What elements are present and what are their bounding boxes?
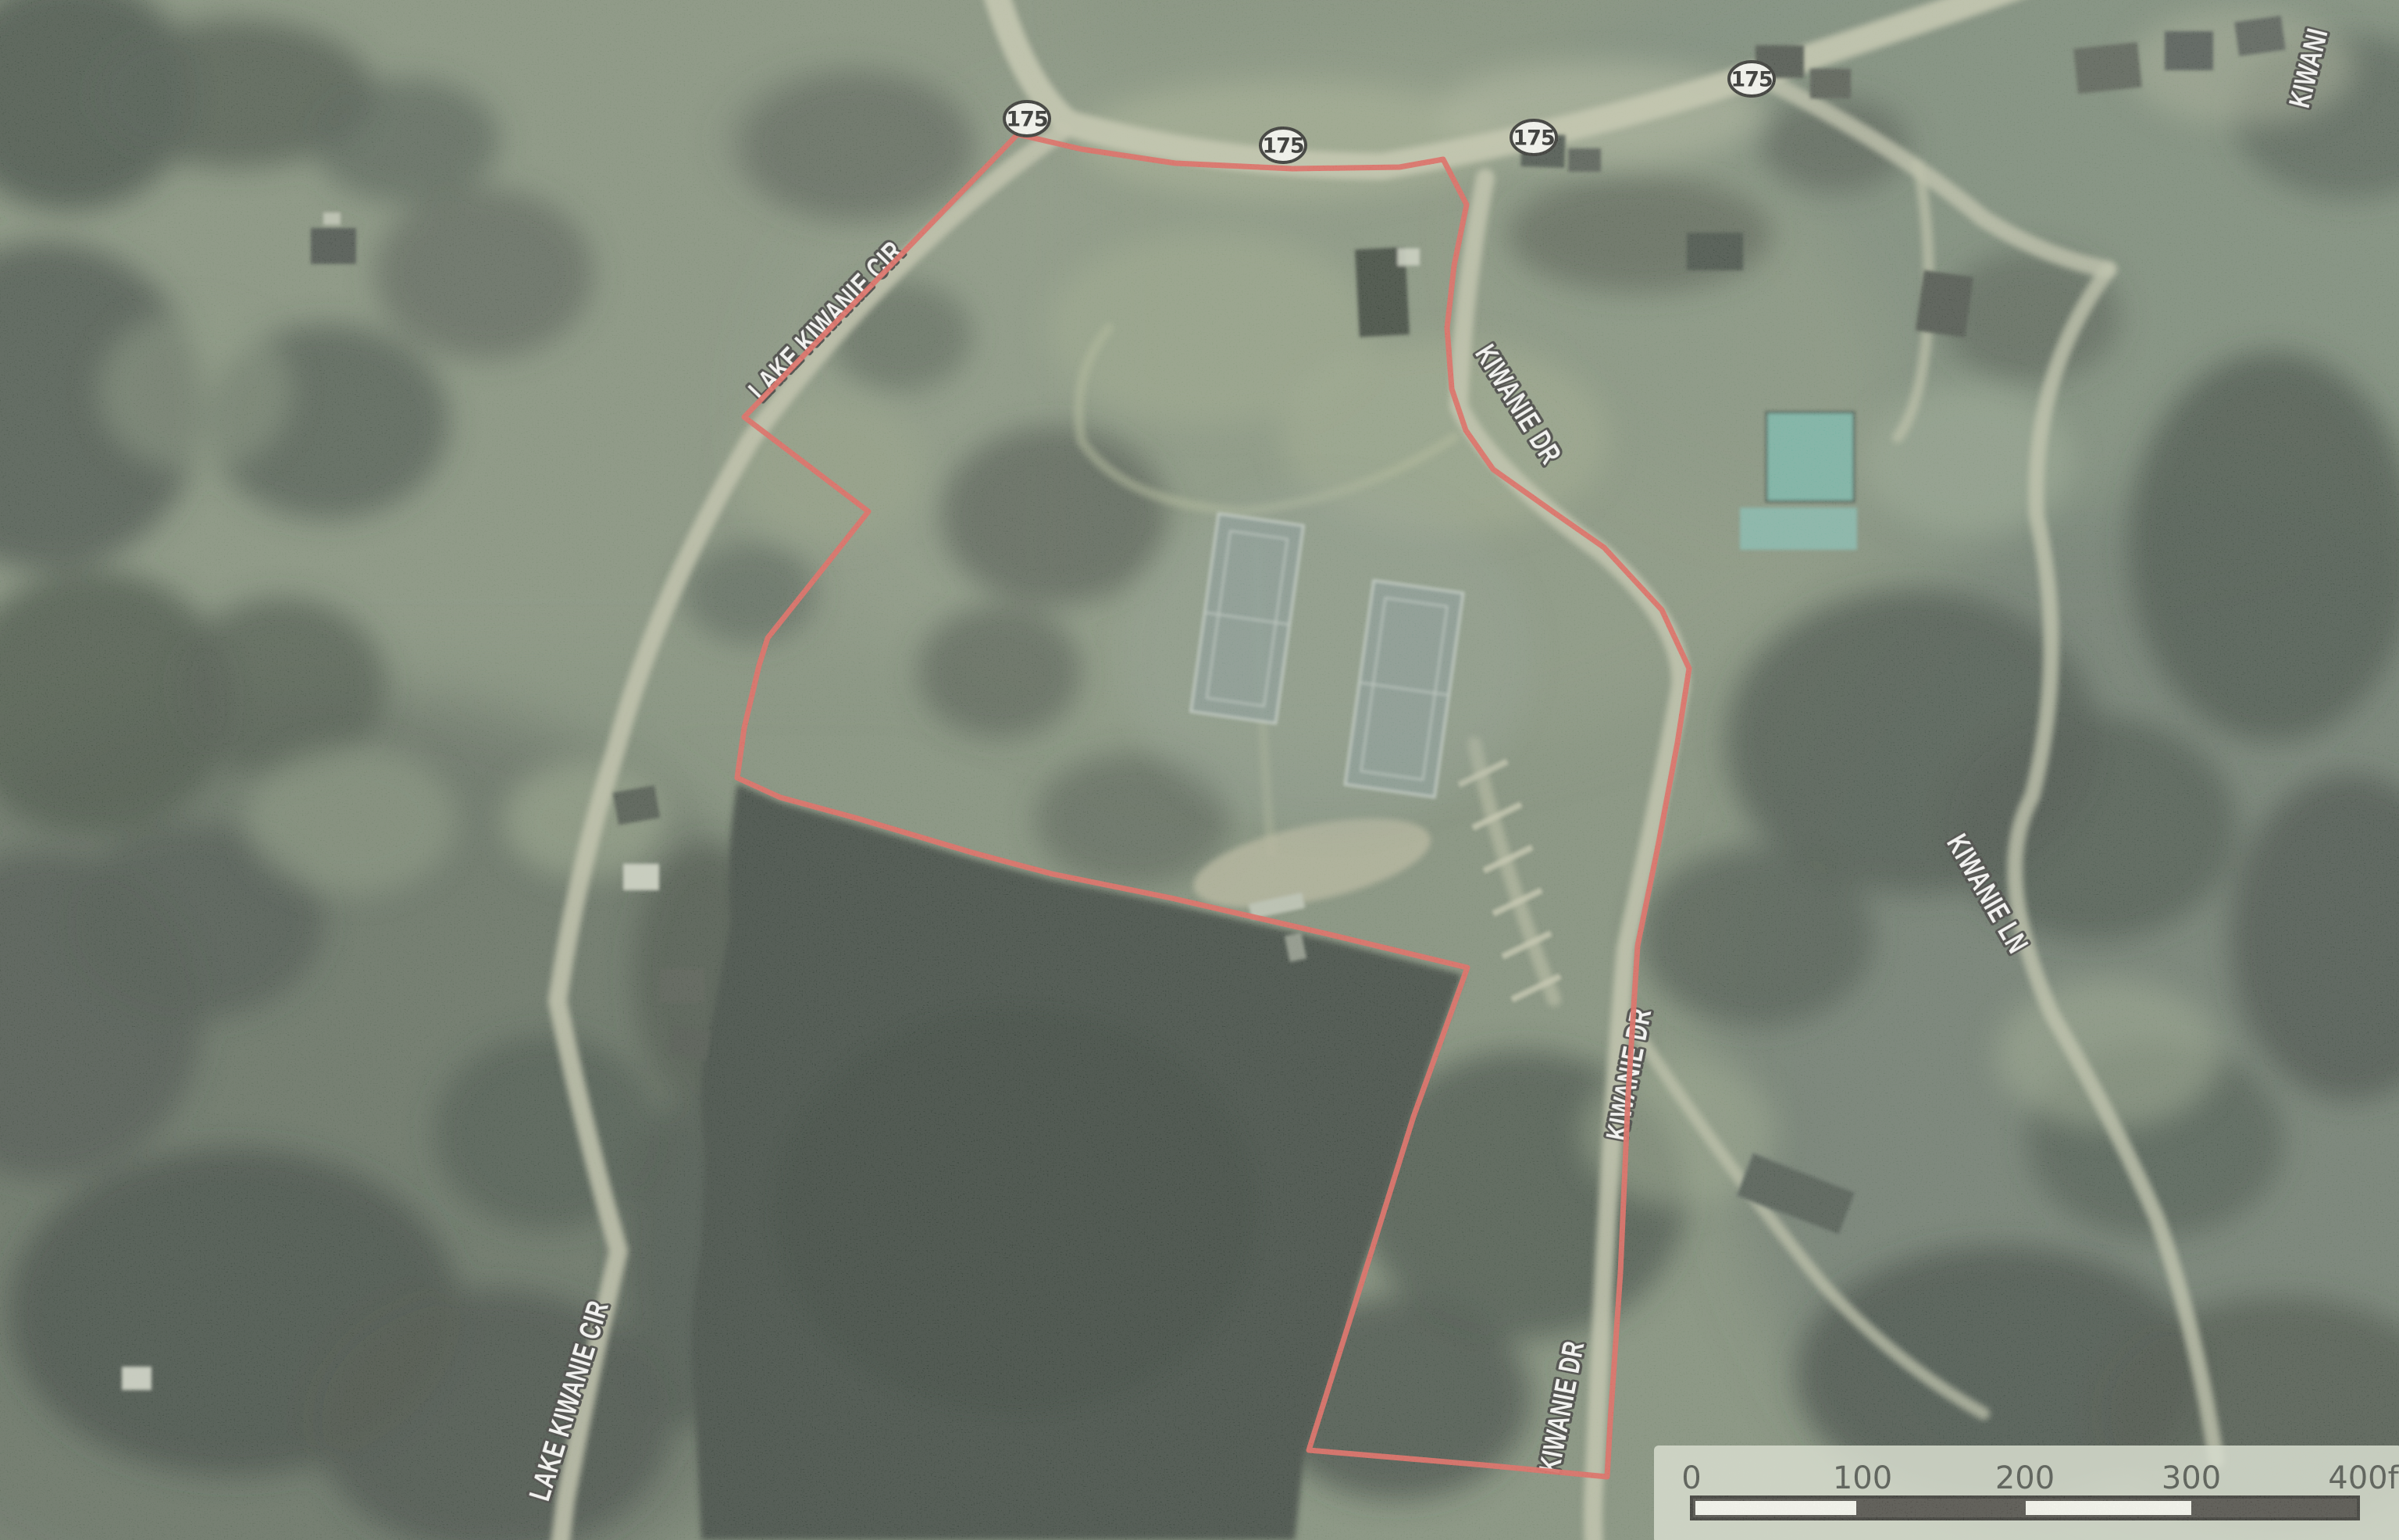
aerial-photo-canvas: LAKE KIWANIE CIRKIWANIE DRKIWANIE DRKIWA… — [0, 0, 2399, 1540]
aerial-map: LAKE KIWANIE CIRKIWANIE DRKIWANIE DRKIWA… — [0, 0, 2399, 1540]
scan-grain-overlay — [0, 0, 2399, 1540]
